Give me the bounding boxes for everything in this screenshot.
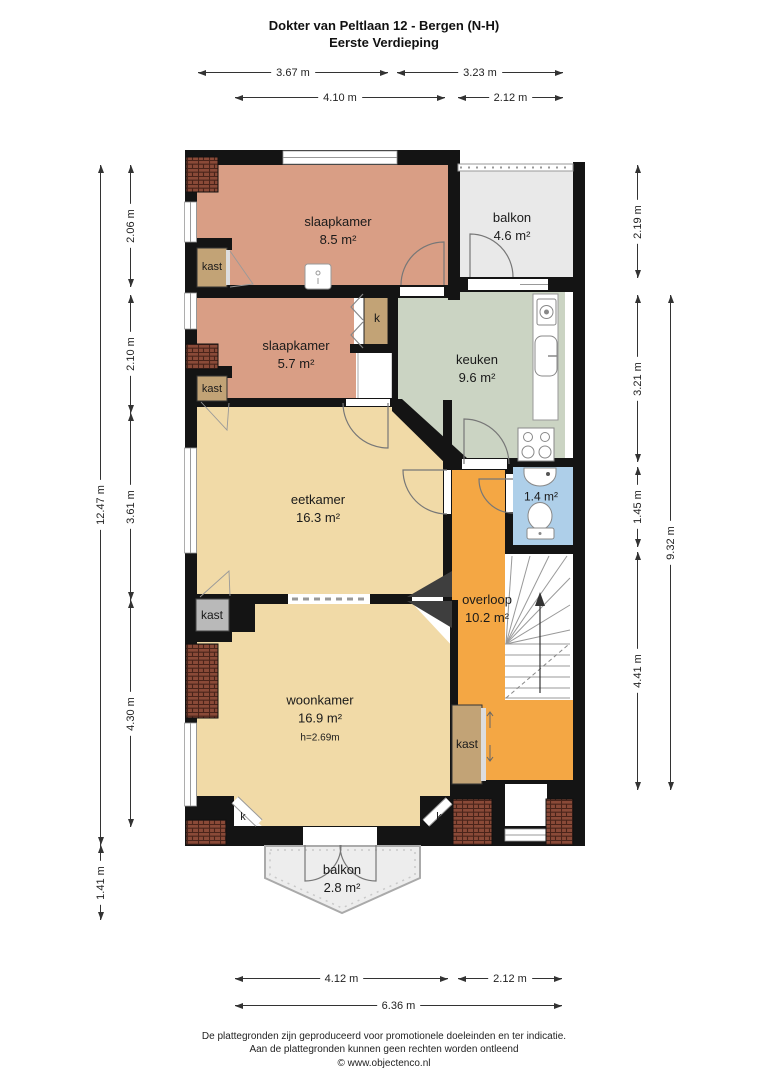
dim-top-212: 2.12 m — [458, 97, 563, 98]
room-name: slaapkamer — [304, 214, 371, 229]
label-overloop: overloop 10.2 m² — [462, 591, 512, 627]
disclaimer: De plattegronden zijn geproduceerd voor … — [0, 1030, 768, 1070]
dim-top-410: 4.10 m — [235, 97, 445, 98]
dim-left-361: 3.61 m — [130, 413, 131, 600]
wc — [528, 503, 552, 530]
balcony-rail-top — [458, 164, 573, 171]
label-slaapkamer-2: slaapkamer 5.7 m² — [262, 337, 329, 373]
room-area: 5.7 m² — [278, 356, 315, 371]
room-name: balkon — [323, 862, 361, 877]
dim-top-367: 3.67 m — [198, 72, 388, 73]
dim-bottom-412: 4.12 m — [235, 978, 448, 979]
dim-bottom-636: 6.36 m — [235, 1005, 562, 1006]
room-area: 4.6 m² — [494, 228, 531, 243]
dim-left-430: 4.30 m — [130, 600, 131, 827]
room-area: 1.4 m² — [524, 490, 558, 504]
label-kast-2: kast — [202, 383, 222, 395]
disclaimer-line-1: De plattegronden zijn geproduceerd voor … — [0, 1030, 768, 1043]
label-kast-4: kast — [456, 737, 478, 751]
dim-right-932: 9.32 m — [670, 295, 671, 790]
dim-left-141: 1.41 m — [100, 845, 101, 920]
label-keuken: keuken 9.6 m² — [456, 351, 498, 387]
label-slaapkamer-1: slaapkamer 8.5 m² — [304, 213, 371, 249]
dim-right-145: 1.45 m — [637, 467, 638, 547]
room-name: woonkamer — [286, 693, 353, 708]
room-area: 16.9 m² — [298, 711, 342, 726]
dim-top-323: 3.23 m — [397, 72, 563, 73]
room-overloop-2 — [505, 698, 573, 784]
dim-bottom-212: 2.12 m — [458, 978, 562, 979]
dim-right-441: 4.41 m — [637, 552, 638, 790]
dim-left-210: 2.10 m — [130, 295, 131, 413]
copyright: © www.objectenco.nl — [0, 1057, 768, 1070]
label-kast-1: kast — [202, 261, 222, 273]
room-height: h=2.69m — [300, 733, 339, 744]
room-area: 16.3 m² — [296, 510, 340, 525]
room-area: 2.8 m² — [324, 880, 361, 895]
label-k-right: k — [436, 811, 442, 823]
floor-plan — [0, 0, 768, 1086]
disclaimer-line-2: Aan de plattegronden kunnen geen rechten… — [0, 1043, 768, 1056]
kitchen-cabinet — [358, 352, 392, 404]
room-area: 10.2 m² — [465, 610, 509, 625]
label-k-closet: k — [374, 311, 380, 325]
closet-kast-4-door — [481, 708, 486, 781]
closet-kast-1-door — [226, 250, 230, 285]
radiator — [305, 264, 331, 289]
room-name: balkon — [493, 210, 531, 225]
label-balkon-boven: balkon 4.6 m² — [493, 209, 531, 245]
dim-left-206: 2.06 m — [130, 165, 131, 287]
room-name: slaapkamer — [262, 338, 329, 353]
label-toilet: 1.4 m² — [524, 489, 558, 506]
room-name: eetkamer — [291, 492, 345, 507]
room-area: 9.6 m² — [459, 370, 496, 385]
label-kast-3: kast — [201, 608, 223, 622]
room-area: 8.5 m² — [320, 232, 357, 247]
dim-right-321: 3.21 m — [637, 295, 638, 462]
label-balkon-beneden: balkon 2.8 m² — [323, 861, 361, 897]
room-name: keuken — [456, 352, 498, 367]
label-k-left: k — [240, 811, 246, 823]
floorplan-page: Dokter van Peltlaan 12 - Bergen (N-H) Ee… — [0, 0, 768, 1086]
label-eetkamer: eetkamer 16.3 m² — [291, 491, 345, 527]
label-woonkamer: woonkamer 16.9 m² h=2.69m — [286, 692, 353, 747]
room-name: overloop — [462, 592, 512, 607]
dim-right-219: 2.19 m — [637, 165, 638, 278]
dim-left-1247: 12.47 m — [100, 165, 101, 845]
